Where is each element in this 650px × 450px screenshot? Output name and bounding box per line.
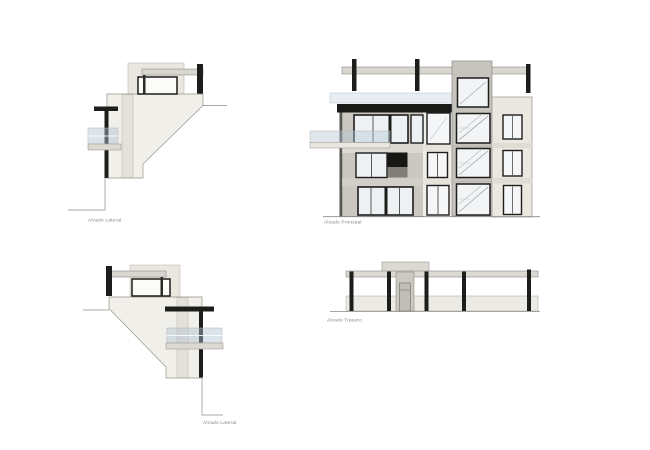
pergola-beam (346, 271, 538, 277)
floor-band (423, 145, 452, 151)
window-row-ground (358, 186, 449, 216)
post (350, 272, 354, 312)
pergola-beam (108, 271, 166, 277)
tower-top (382, 262, 429, 272)
floor-band (492, 143, 532, 148)
window-post (143, 75, 146, 94)
floor-band (342, 178, 423, 186)
elevation-label: Alzado Principal (324, 220, 362, 225)
parapet-wall (346, 296, 538, 311)
balcony-slab (88, 144, 121, 150)
pergola-post (526, 64, 531, 93)
balcony-slab (310, 143, 390, 149)
post (425, 272, 429, 312)
elevation-lateral-upper: Alzado Lateral (68, 63, 227, 223)
stair-window (457, 114, 491, 144)
right-wing (492, 97, 532, 217)
pergola-beam (142, 69, 203, 75)
wall-strip (122, 95, 133, 178)
elevation-lateral-lower: Alzado Lateral (83, 265, 236, 425)
roof-slab-edge (165, 307, 214, 312)
elevation-label: Alzado Lateral (88, 218, 121, 223)
floor-band (423, 178, 452, 185)
window-row-middle (356, 153, 448, 178)
pergola-post (352, 59, 357, 91)
terrace-recess-floor (388, 167, 408, 178)
door (400, 283, 411, 311)
ground-step-right (202, 378, 223, 415)
building-body (107, 94, 203, 178)
tower-top-window (458, 78, 489, 107)
ground-step-left (68, 178, 105, 210)
post (462, 272, 466, 312)
post (527, 270, 531, 312)
pergola-post (415, 59, 420, 91)
elevation-principal: Alzado Principal (310, 59, 540, 225)
stair-window (457, 149, 491, 178)
pergola-post (106, 266, 112, 296)
facade-left-edge (340, 112, 343, 217)
stair-tower (452, 61, 492, 216)
window (411, 115, 423, 143)
terrace-window (132, 279, 170, 296)
window-divider (385, 187, 388, 215)
floor-band (492, 178, 532, 184)
roof-fascia-band (337, 104, 457, 113)
elevation-label: Alzado Trasero (327, 318, 362, 323)
drawing-sheet: Alzado Lateral (0, 0, 650, 450)
pergola-post (197, 64, 203, 94)
stair-window (457, 184, 491, 215)
balcony-glass-railing (310, 131, 390, 143)
roof-glass-railing (330, 93, 452, 103)
elevation-label: Alzado Lateral (203, 420, 236, 425)
terrace-recess-dark (388, 153, 408, 168)
window-post (161, 277, 164, 296)
balcony-slab (166, 343, 223, 349)
post (387, 272, 391, 312)
pergola-beam (342, 67, 530, 74)
elevations-canvas: Alzado Lateral (0, 0, 650, 450)
roof-slab-edge (94, 107, 118, 112)
elevation-trasero: Alzado Trasero (327, 262, 540, 323)
